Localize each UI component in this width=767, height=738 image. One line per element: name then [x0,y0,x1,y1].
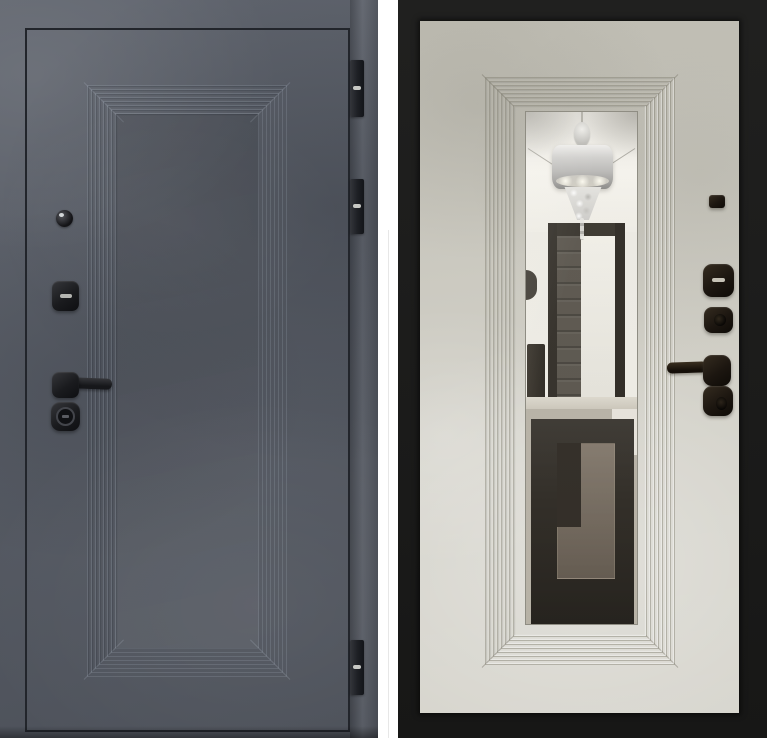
door-exterior-side [0,0,378,738]
molding-step [95,93,279,669]
lower-lock-escutcheon [703,386,733,416]
door-handle-rose [52,372,79,398]
molding-step [87,85,287,677]
hinge-pin [353,204,361,208]
interior-handle-rose [703,355,731,386]
molding-step [107,105,267,657]
product-photo [0,0,767,738]
cylinder-escutcheon [704,307,733,333]
lock-slot [60,294,72,298]
thumbturn-slot [712,278,725,282]
hinge-top [350,60,364,117]
peephole-cover [709,195,725,208]
thumbturn-escutcheon [703,264,734,297]
full-length-mirror [525,111,638,625]
floor-shadow [0,726,378,738]
hinge-bottom [350,640,364,695]
peephole-glint [59,213,64,217]
keyhole [714,314,726,326]
interior-door-panel [420,21,739,713]
thumbturn-slot [62,415,69,418]
interior-handle-lever [667,361,707,373]
peephole [56,210,73,227]
molding-inner-field [115,113,259,649]
hinge-pin [353,86,361,90]
keyhole [716,397,727,410]
divider-edge-line [388,230,389,738]
mirror-glass-sheen [526,112,638,625]
stepped-panel-molding [84,82,290,680]
molding-step [103,101,271,661]
molding-step [99,97,275,665]
image-divider [378,0,398,738]
upper-lock-escutcheon [52,281,79,311]
door-interior-side [398,0,767,738]
molding-step [111,109,263,653]
hinge-pin [353,665,361,669]
cylinder-thumbturn [51,402,80,431]
hinge-middle [350,179,364,234]
molding-step [91,89,283,673]
